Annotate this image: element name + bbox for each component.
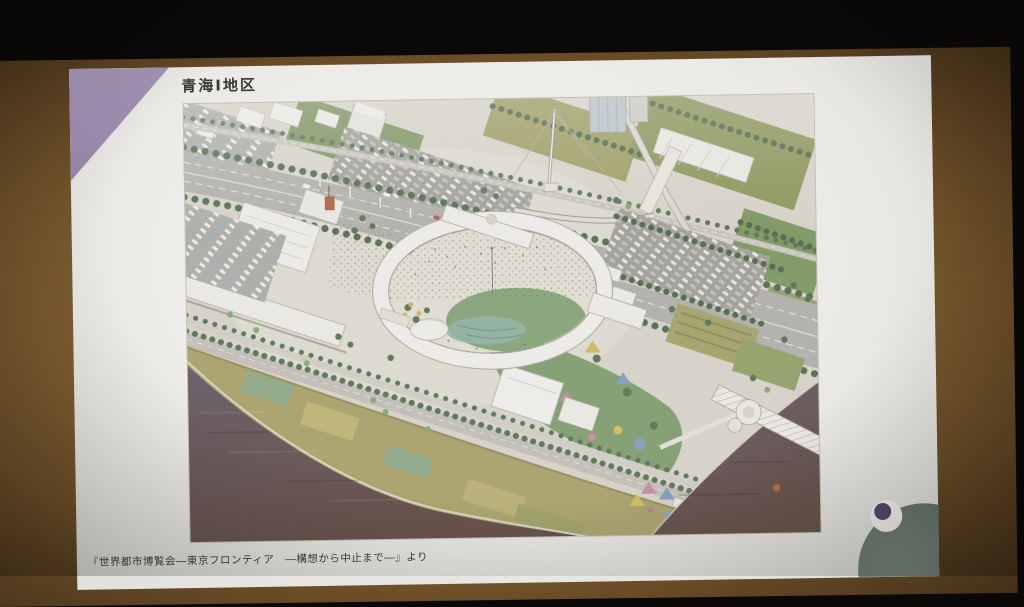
photo-glare	[183, 93, 822, 543]
aerial-illustration	[183, 93, 822, 543]
projected-slide: 青海Ⅰ地区	[69, 55, 939, 590]
slide-accent-triangle	[69, 67, 171, 181]
source-caption: 『世界都市博覧会―東京フロンティア ―構想から中止まで―』より	[88, 549, 428, 569]
slide-title: 青海Ⅰ地区	[181, 74, 257, 96]
